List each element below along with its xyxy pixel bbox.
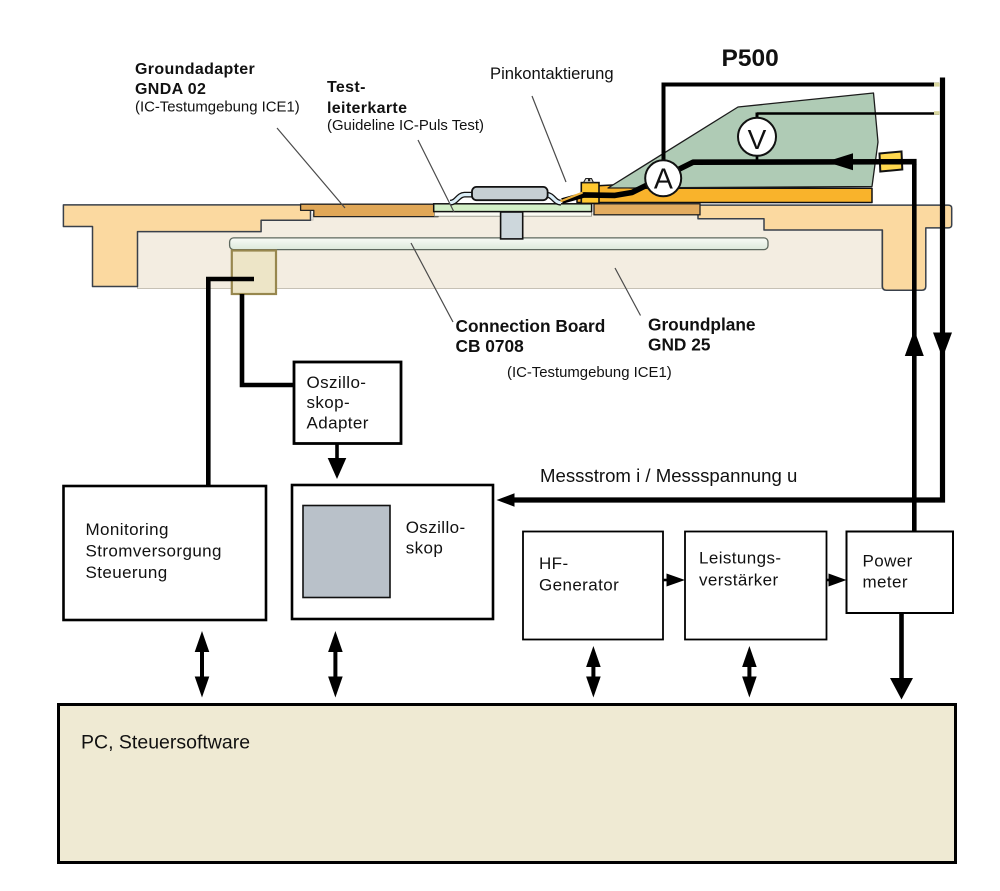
svg-text:skop: skop bbox=[406, 539, 444, 558]
svg-text:Connection Board: Connection Board bbox=[456, 316, 606, 336]
svg-text:Generator: Generator bbox=[539, 576, 619, 595]
svg-text:Oszillo-: Oszillo- bbox=[406, 518, 466, 537]
svg-text:(IC-Testumgebung ICE1): (IC-Testumgebung ICE1) bbox=[135, 100, 300, 116]
svg-text:Messstrom i / Messspannung u: Messstrom i / Messspannung u bbox=[540, 465, 797, 486]
svg-text:Leistungs-: Leistungs- bbox=[699, 548, 781, 567]
svg-text:skop-: skop- bbox=[307, 393, 351, 412]
svg-text:Groundadapter: Groundadapter bbox=[135, 61, 255, 78]
svg-text:Oszillo-: Oszillo- bbox=[307, 373, 367, 392]
svg-text:Adapter: Adapter bbox=[307, 414, 369, 433]
svg-text:P500: P500 bbox=[722, 45, 779, 72]
svg-text:Stromversorgung: Stromversorgung bbox=[86, 541, 222, 560]
svg-text:CB 0708: CB 0708 bbox=[456, 336, 525, 356]
svg-text:HF-: HF- bbox=[539, 554, 569, 573]
svg-text:meter: meter bbox=[863, 573, 908, 592]
svg-text:(IC-Testumgebung ICE1): (IC-Testumgebung ICE1) bbox=[507, 365, 672, 381]
svg-text:(Guideline IC-Puls Test): (Guideline IC-Puls Test) bbox=[327, 118, 484, 134]
svg-text:GNDA 02: GNDA 02 bbox=[135, 81, 206, 98]
svg-text:verstärker: verstärker bbox=[699, 571, 779, 590]
svg-text:A: A bbox=[654, 164, 673, 196]
svg-text:Monitoring: Monitoring bbox=[86, 520, 169, 539]
svg-text:leiterkarte: leiterkarte bbox=[327, 100, 407, 117]
svg-text:Groundplane: Groundplane bbox=[648, 315, 756, 335]
svg-text:GND 25: GND 25 bbox=[648, 335, 711, 355]
svg-text:Power: Power bbox=[863, 552, 913, 571]
svg-text:Steuerung: Steuerung bbox=[86, 563, 168, 582]
svg-text:V: V bbox=[748, 124, 767, 155]
svg-text:Test-: Test- bbox=[327, 79, 366, 96]
svg-text:Pinkontaktierung: Pinkontaktierung bbox=[490, 64, 614, 83]
svg-text:PC, Steuersoftware: PC, Steuersoftware bbox=[81, 732, 250, 754]
